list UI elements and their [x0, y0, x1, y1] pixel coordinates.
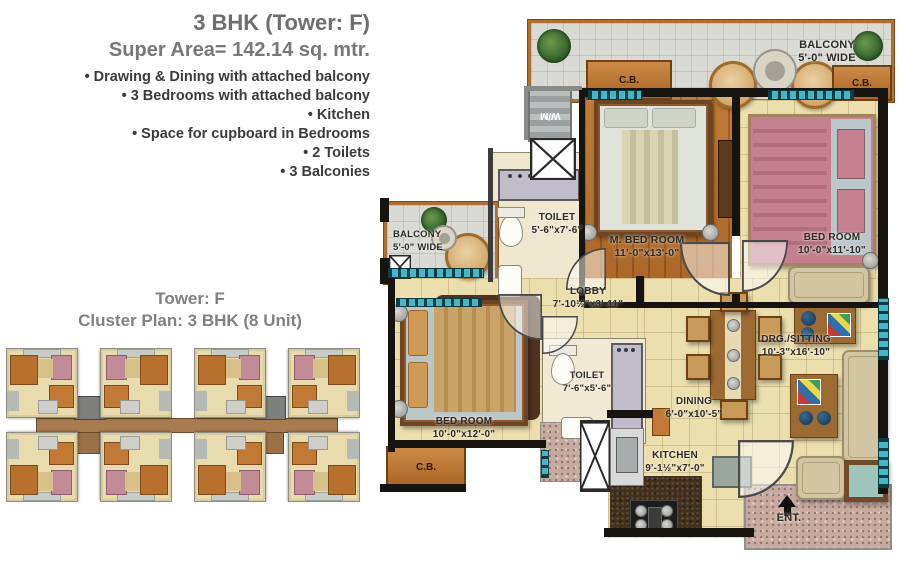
room-label-bedroom-bottom: BED ROOM 10'-0"x12'-0"	[414, 416, 514, 441]
door-arc-bedroom-bottom	[498, 294, 542, 340]
plan-subtitle: Super Area= 142.14 sq. mtr.	[40, 38, 370, 62]
cluster-unit	[288, 348, 360, 418]
unit-lobby	[125, 472, 140, 491]
unit-toilet	[308, 436, 328, 450]
feature-item: • Drawing & Dining with attached balcony	[40, 68, 370, 87]
unit-side-balcony	[159, 391, 171, 411]
unit-toilet	[308, 400, 328, 414]
cluster-title-block: Tower: F Cluster Plan: 3 BHK (8 Unit)	[30, 288, 350, 332]
wall	[604, 528, 754, 537]
unit-bedroom-pink	[106, 355, 127, 380]
unit-toilet	[120, 400, 140, 414]
sofa-icon	[788, 266, 870, 304]
wall	[380, 484, 466, 492]
room-label-kitchen: KITCHEN 9'-1½"x7'-0"	[632, 450, 718, 475]
unit-master-bedroom	[328, 465, 356, 495]
cupboard-bottom: C.B.	[386, 446, 466, 488]
window	[878, 298, 889, 360]
unit-bedroom-pink	[239, 355, 260, 380]
unit-bedroom-pink	[294, 470, 315, 495]
wall	[388, 276, 395, 452]
floor-plan: BALCONY 5'-0" WIDE W/M TOILET 5'-6"x7'-6…	[380, 10, 896, 555]
door-arc-toilet-bottom	[542, 316, 578, 354]
unit-side-balcony	[347, 391, 359, 411]
window	[768, 90, 854, 100]
unit-master-bedroom	[10, 465, 38, 495]
coffee-table-icon	[790, 374, 838, 438]
unit-lobby	[38, 472, 53, 491]
plan-title: 3 BHK (Tower: F)	[40, 10, 370, 36]
unit-side-balcony	[7, 439, 19, 459]
feature-item: • 2 Toilets	[40, 144, 370, 163]
unit-bedroom-pink	[106, 470, 127, 495]
room-label-balcony-left: BALCONY 5'-0" WIDE	[393, 229, 459, 254]
wall	[732, 294, 740, 308]
cluster-unit	[288, 432, 360, 502]
cluster-unit	[194, 348, 266, 418]
unit-master-bedroom	[140, 355, 168, 385]
room-label-toilet-bottom: TOILET 7'-6"x5'-6"	[545, 370, 629, 395]
window	[396, 298, 482, 307]
unit-master-bedroom	[198, 355, 226, 385]
wall	[488, 148, 493, 282]
wall	[388, 440, 546, 448]
washing-machine: W/M	[528, 88, 572, 142]
unit-lobby	[226, 472, 241, 491]
plant-icon	[537, 29, 571, 63]
unit-toilet	[226, 400, 246, 414]
unit-bedroom-pink	[51, 470, 72, 495]
unit-side-balcony	[347, 439, 359, 459]
cluster-plan	[6, 346, 350, 500]
unit-master-bedroom	[10, 355, 38, 385]
unit-toilet	[226, 436, 246, 450]
cluster-unit	[100, 432, 172, 502]
unit-side-balcony	[195, 439, 207, 459]
room-label-bedroom-right: BED ROOM 10'-0"x11'-10"	[780, 232, 884, 257]
window	[541, 450, 549, 478]
window	[588, 90, 642, 100]
wall	[607, 410, 653, 418]
lift-shaft-icon	[580, 420, 610, 492]
unit-lobby	[38, 359, 53, 378]
unit-toilet	[120, 436, 140, 450]
cluster-unit	[194, 432, 266, 502]
shaft-icon	[530, 138, 576, 180]
dining-chair-icon	[686, 354, 710, 380]
unit-side-balcony	[159, 439, 171, 459]
unit-master-bedroom	[140, 465, 168, 495]
armchair-icon	[796, 456, 846, 500]
room-label-drg-sitting: DRG./SITTING 10'-3"x16'-10"	[742, 334, 850, 359]
room-label-dining: DINING 6'-0"x10'-5"	[648, 396, 740, 421]
unit-toilet	[38, 436, 58, 450]
feature-item: • Kitchen	[40, 106, 370, 125]
cluster-unit	[6, 432, 78, 502]
feature-item: • 3 Bedrooms with attached balcony	[40, 87, 370, 106]
cluster-unit	[6, 348, 78, 418]
window	[878, 438, 889, 488]
wall	[524, 86, 582, 91]
feature-list: • Drawing & Dining with attached balcony…	[40, 68, 370, 182]
room-label-m-bedroom: M. BED ROOM 11'-0"x13'-0"	[588, 234, 706, 259]
unit-master-bedroom	[198, 465, 226, 495]
cluster-corridor	[36, 418, 338, 433]
unit-side-balcony	[195, 391, 207, 411]
unit-toilet	[38, 400, 58, 414]
wall	[380, 198, 389, 222]
cluster-subtitle: Cluster Plan: 3 BHK (8 Unit)	[30, 310, 350, 332]
wall	[878, 90, 888, 494]
bed-icon	[594, 100, 712, 236]
unit-lobby	[226, 359, 241, 378]
cluster-title: Tower: F	[30, 288, 350, 310]
info-panel: 3 BHK (Tower: F) Super Area= 142.14 sq. …	[40, 10, 370, 182]
wall	[732, 90, 740, 236]
unit-bedroom-pink	[51, 355, 72, 380]
unit-lobby	[125, 359, 140, 378]
unit-lobby	[313, 359, 328, 378]
dining-chair-icon	[686, 316, 710, 342]
window	[388, 268, 484, 278]
wall	[740, 302, 880, 308]
unit-lobby	[313, 472, 328, 491]
unit-bedroom-pink	[294, 355, 315, 380]
sink-icon	[498, 265, 522, 297]
cluster-unit	[100, 348, 172, 418]
feature-item: • Space for cupboard in Bedrooms	[40, 125, 370, 144]
brochure-page: 3 BHK (Tower: F) Super Area= 142.14 sq. …	[0, 0, 900, 582]
room-label-entrance: ENT.	[760, 512, 818, 525]
unit-side-balcony	[7, 391, 19, 411]
room-label-lobby: LOBBY 7'-10½"x3'-11"	[538, 286, 638, 311]
unit-bedroom-pink	[239, 470, 260, 495]
feature-item: • 3 Balconies	[40, 163, 370, 182]
room-label-balcony-top: BALCONY 5'-0" WIDE	[771, 39, 883, 64]
wall	[524, 86, 528, 140]
unit-master-bedroom	[328, 355, 356, 385]
